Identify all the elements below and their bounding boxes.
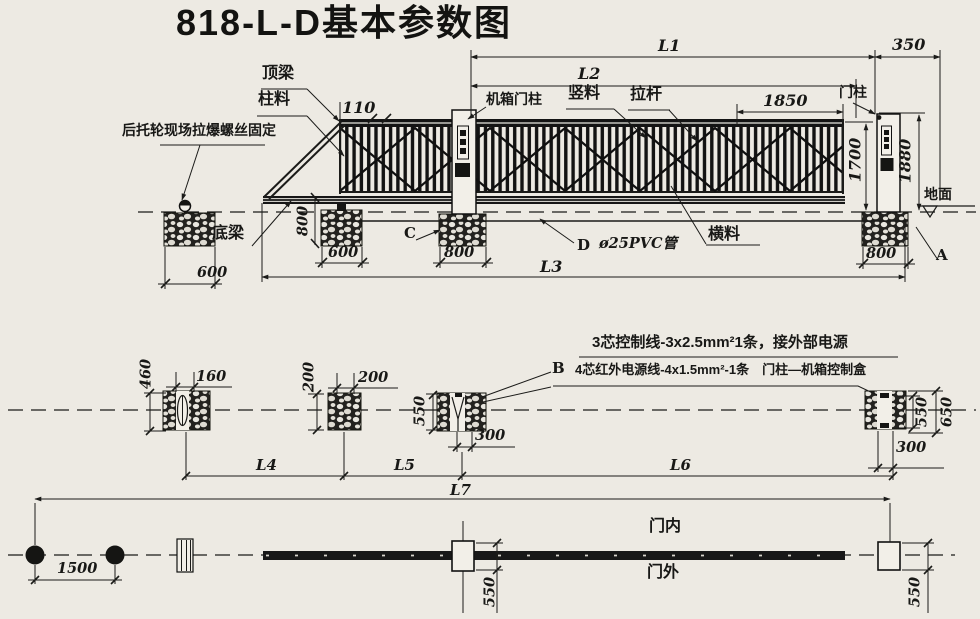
label-tie-rod: 拉杆 [630,87,662,104]
ref-A: A [936,248,948,264]
cabinet-post-plan [452,521,474,613]
dim-600-left: 600 [197,265,227,280]
dim-300-right: 300 [896,440,926,455]
ref-C: C [404,226,416,242]
gate-track-bar [263,551,845,560]
note-infrared-wire: 4芯红外电源线-4x1.5mm²-1条 门柱—机箱控制盒 [575,363,866,377]
dim-L7: L7 [450,483,471,499]
dim-550-track-right: 550 [907,577,922,607]
control-box [455,163,470,177]
fixed-post-plan [177,539,193,572]
dim-1700: 1700 [848,138,865,183]
note-control-wire: 3芯控制线-3x2.5mm²1条，接外部电源 [592,335,848,351]
dim-L1: L1 [658,38,680,55]
dim-L2: L2 [578,66,600,83]
dim-L3: L3 [540,259,562,276]
dim-1880: 1880 [898,139,915,184]
dim-550-track-mid: 550 [482,577,497,607]
gate-panel [340,119,843,194]
ref-D: D [577,238,590,254]
bottom-beam [263,196,845,204]
track-end-post [26,546,45,565]
dim-350: 350 [892,37,925,54]
label-vertical-member: 竖料 [568,86,600,103]
drawing-sheet: 818-L-D基本参数图 顶梁 柱料 后托轮现场拉爆螺丝固定 110 机箱门柱 … [0,0,980,619]
foundation-blocks-plan [163,391,906,431]
dim-160: 160 [196,369,226,384]
control-box [881,158,894,171]
label-post-material: 柱料 [258,92,290,109]
label-gate-post: 门柱 [839,85,867,100]
foundation-blocks-elevation [164,210,908,246]
dim-300-mid: 300 [475,428,505,443]
dim-600-mid: 600 [328,245,358,260]
machine-cabinet-post [452,110,476,214]
label-horizontal-member: 横料 [708,227,740,244]
dim-460: 460 [138,359,153,389]
dim-200-v: 200 [301,362,316,392]
dim-650-right: 650 [939,397,954,427]
dim-L5: L5 [394,458,415,474]
dim-200-h: 200 [358,370,388,385]
ref-B: B [552,361,565,377]
dim-L6: L6 [670,458,691,474]
label-gate-inside: 门内 [649,519,681,536]
dim-1850: 1850 [763,93,808,110]
support-wheel-icon [180,200,191,212]
dim-1500: 1500 [57,561,97,576]
dim-800-right: 800 [866,246,896,261]
label-ground: 地面 [924,187,952,202]
dim-800-left: 800 [295,206,310,236]
label-top-beam: 顶梁 [262,66,294,83]
gate-post-plan [878,542,900,570]
dim-L4: L4 [256,458,277,474]
dim-550-right: 550 [914,397,929,427]
label-bottom-beam: 底梁 [212,226,244,243]
label-pvc-pipe: ø25PVC管 [599,236,677,251]
dim-800-mid: 800 [444,245,474,260]
label-gate-outside: 门外 [647,565,679,582]
left-strut [264,122,345,199]
pickets [340,127,843,192]
label-cabinet-post: 机箱门柱 [486,92,542,107]
page-title: 818-L-D基本参数图 [176,4,512,42]
label-rear-wheel-note: 后托轮现场拉爆螺丝固定 [122,123,276,138]
dim-110: 110 [342,100,375,117]
dim-550-mid: 550 [412,396,427,426]
track-end-post [106,546,125,565]
